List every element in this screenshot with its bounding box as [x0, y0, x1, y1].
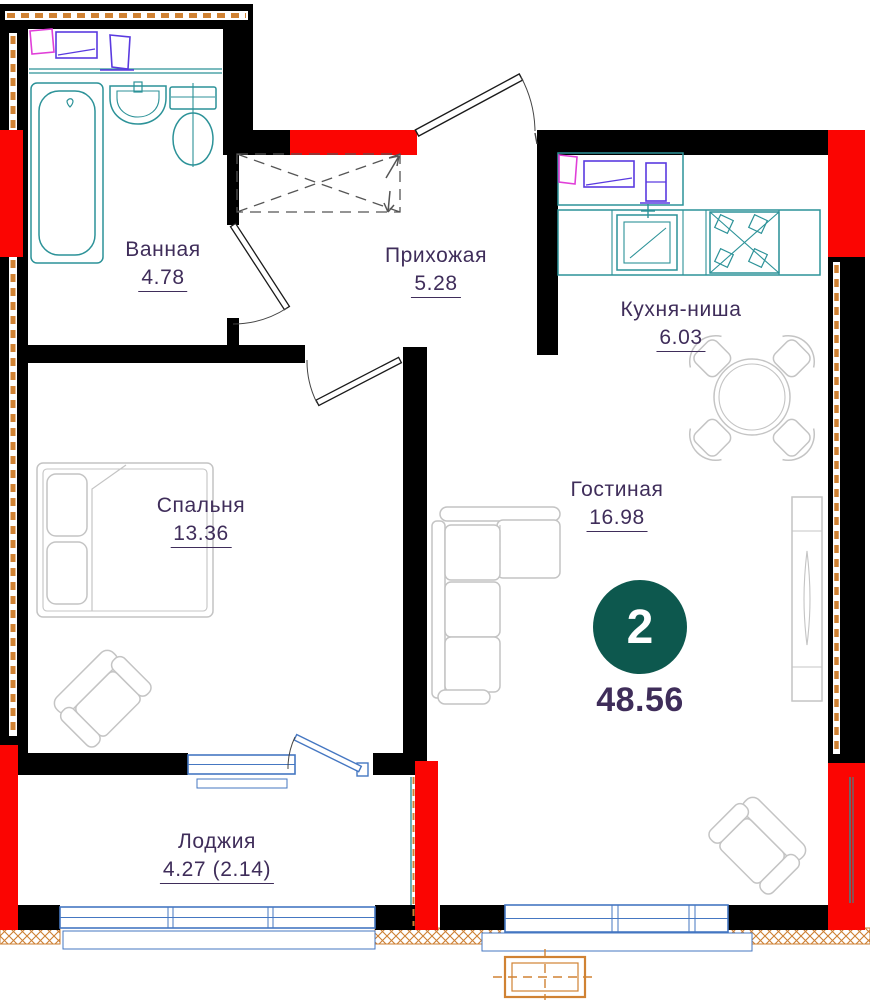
sofa-icon — [432, 507, 560, 704]
bedroom-loggia-window — [188, 755, 295, 788]
floor-plan-drawing — [0, 0, 870, 1000]
ac-unit-icon — [493, 949, 597, 1000]
kitchen-fixtures — [558, 153, 820, 275]
armchair-icon — [48, 644, 154, 750]
room-area: 5.28 — [411, 272, 460, 298]
washbasin-icon — [110, 82, 166, 124]
room-label-hallway: Прихожая 5.28 — [385, 244, 487, 298]
room-area: 4.78 — [138, 266, 187, 292]
room-name: Спальня — [157, 494, 246, 518]
bedroom-door — [307, 357, 401, 405]
balcony-door — [288, 735, 368, 776]
stove-icon — [710, 212, 779, 273]
dining-table-icon — [714, 359, 790, 435]
armchair-icon — [706, 791, 812, 897]
room-name: Кухня-ниша — [620, 298, 741, 322]
room-area: 16.98 — [586, 506, 648, 532]
loggia-glazing — [60, 907, 375, 949]
entry-arrow-icon — [384, 156, 399, 212]
kitchen-counter — [558, 210, 820, 275]
room-name: Ванная — [125, 238, 201, 262]
kitchen-appliances — [559, 155, 670, 203]
living-room-window — [482, 905, 752, 951]
room-label-kitchen: Кухня-ниша 6.03 — [620, 298, 741, 352]
bathtub-icon — [31, 83, 103, 263]
room-label-living: Гостиная 16.98 — [571, 478, 664, 532]
room-area: 13.36 — [170, 522, 232, 548]
room-label-loggia: Лоджия 4.27 (2.14) — [160, 830, 274, 884]
floor-plan: Ванная 4.78 Прихожая 5.28 Кухня-ниша 6.0… — [0, 0, 870, 1000]
room-area: 6.03 — [656, 326, 705, 352]
room-count-badge: 2 — [593, 580, 687, 674]
bathroom-fixtures — [29, 69, 222, 263]
kitchen-sink-icon — [617, 204, 677, 270]
bathroom-door — [230, 223, 289, 324]
hall-closet-dashed — [237, 154, 400, 212]
wardrobe-icon — [792, 497, 822, 701]
room-label-bathroom: Ванная 4.78 — [125, 238, 201, 292]
room-name: Лоджия — [160, 830, 274, 854]
entrance-door — [415, 74, 537, 144]
room-count: 2 — [627, 600, 654, 655]
room-area: 4.27 (2.14) — [160, 858, 274, 884]
room-label-bedroom: Спальня 13.36 — [157, 494, 246, 548]
room-name: Прихожая — [385, 244, 487, 268]
bathroom-appliances — [30, 29, 134, 70]
room-name: Гостиная — [571, 478, 664, 502]
toilet-icon — [170, 83, 216, 167]
total-area: 48.56 — [567, 681, 713, 720]
